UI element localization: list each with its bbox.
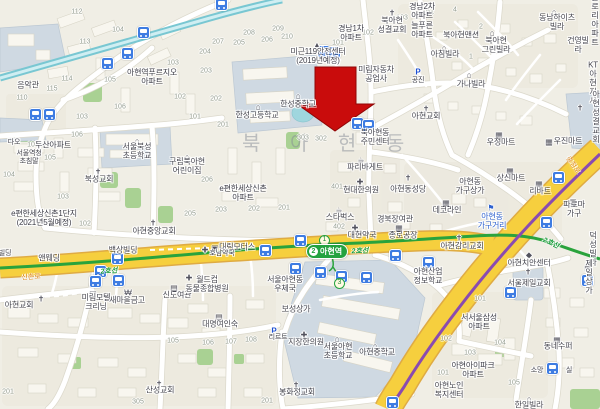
bus-stop-icon[interactable] bbox=[294, 234, 307, 247]
map-label: 한일빌라 bbox=[515, 402, 544, 409]
map-label: 백상빌딩 bbox=[109, 247, 138, 256]
map-label: 서울북성 초등학교 bbox=[123, 143, 152, 161]
map-label: 실 bbox=[566, 367, 572, 375]
subway-station-ahyeon[interactable]: 2 아현역 bbox=[306, 244, 348, 259]
map-label: 미림모텔 크리닝 bbox=[82, 294, 111, 312]
map-label: 봉화정교회 bbox=[279, 389, 315, 398]
bus-stop-icon[interactable] bbox=[43, 108, 56, 121]
map-label: 앤웨딩 bbox=[38, 255, 59, 264]
parking-icon[interactable]: P bbox=[415, 68, 420, 77]
station-exit-3[interactable]: 3 bbox=[334, 278, 345, 289]
building-number: 104 bbox=[494, 340, 506, 347]
map-label: 미림자동차 공업사 bbox=[358, 66, 394, 84]
building-number: 101 bbox=[474, 296, 486, 303]
map-label: 지장한의원 bbox=[288, 339, 324, 348]
map-label: 아현치안센터 bbox=[508, 260, 551, 269]
bus-stop-icon[interactable] bbox=[546, 362, 559, 375]
building-number: 102 bbox=[440, 336, 452, 343]
bus-stop-icon[interactable] bbox=[137, 26, 150, 39]
building-number: 105 bbox=[44, 155, 56, 162]
map-label: 두산아파트 bbox=[35, 142, 71, 151]
map-label: 아현아이파크 아파트 bbox=[452, 362, 495, 380]
building-number: 105 bbox=[167, 338, 179, 345]
map-label: 아현중학교 bbox=[359, 349, 395, 358]
building-number: 105 bbox=[508, 380, 520, 387]
building-number: 201 bbox=[261, 398, 273, 405]
bus-stop-icon[interactable] bbox=[112, 274, 125, 287]
bus-stop-icon[interactable] bbox=[389, 249, 402, 262]
building-number: 302 bbox=[315, 136, 327, 143]
map-label: 글로리 아파트 bbox=[591, 0, 598, 48]
map-label: 아현중앙교회 bbox=[133, 228, 176, 237]
map-label: 동네수퍼 bbox=[544, 343, 573, 352]
building-number: 106 bbox=[202, 340, 214, 347]
map-label: 소망 bbox=[531, 367, 543, 375]
map-label: 음악관 bbox=[17, 82, 38, 91]
building-number: 205 bbox=[233, 40, 245, 47]
map-label: 북성교회 bbox=[85, 176, 114, 185]
map-label: 새마을금고 bbox=[109, 297, 145, 306]
building-number: 203 bbox=[200, 68, 212, 75]
bus-stop-icon[interactable] bbox=[89, 275, 102, 288]
building-number: 207 bbox=[212, 39, 224, 46]
map-label: 산성교회 bbox=[146, 387, 175, 396]
building-number: 101 bbox=[189, 114, 201, 121]
map-label: 아현역푸르지오 아파트 bbox=[127, 69, 177, 87]
building-number: 205 bbox=[184, 211, 196, 218]
map-label: 한성중학교 bbox=[280, 101, 316, 110]
map-label: 월드컵 동물종합병원 bbox=[186, 276, 229, 294]
building-number: 115 bbox=[46, 86, 57, 93]
building-number: 401 bbox=[331, 184, 343, 191]
building-number: 112 bbox=[71, 9, 82, 16]
map-label: 우정마트 bbox=[487, 139, 516, 148]
line2-badge: 2 bbox=[309, 247, 318, 256]
building-number: 103 bbox=[57, 194, 69, 201]
map-label: e편한세상신촌 아파트 bbox=[219, 185, 266, 203]
building-number: 210 bbox=[281, 34, 293, 41]
map-label: 가나빌라 bbox=[457, 81, 486, 90]
map-label: 아현동 가구거리 bbox=[478, 213, 507, 231]
map-view[interactable]: 북 아 현 동 음악관아현역푸르지오 아파트다오서울역청 초침말두산아파트서울북… bbox=[0, 0, 600, 409]
building-number: 209 bbox=[272, 26, 284, 33]
map-label: 아현산업 정보학교 bbox=[414, 268, 443, 286]
map-label: 늘푸른 아파트 bbox=[411, 22, 432, 40]
hospital-icon[interactable]: ✚ bbox=[202, 246, 209, 255]
map-label: 경남1차 아파트 bbox=[338, 25, 364, 43]
map-label: 건영빌라 bbox=[567, 37, 589, 55]
building-number: 102 bbox=[79, 221, 91, 228]
building-number: 108 bbox=[245, 337, 257, 344]
church-icon[interactable]: ✝ bbox=[38, 295, 45, 304]
building-number: 206 bbox=[201, 177, 213, 184]
building-number: 113 bbox=[79, 39, 90, 46]
building-number: 104 bbox=[112, 27, 124, 34]
map-label: 서울제일교회 bbox=[508, 280, 551, 289]
map-label: 서울아현 초등학교 bbox=[324, 343, 353, 361]
bus-stop-icon[interactable] bbox=[540, 216, 553, 229]
building-number: 204 bbox=[199, 49, 211, 56]
bus-stop-icon[interactable] bbox=[101, 57, 114, 70]
building-number: 303 bbox=[297, 135, 309, 142]
building-number: 103 bbox=[76, 114, 88, 121]
map-label: 구립북아현 어린이집 bbox=[169, 158, 205, 176]
bus-stop-icon[interactable] bbox=[29, 108, 42, 121]
map-label: 다오 bbox=[8, 139, 20, 147]
building-number: 103 bbox=[167, 60, 179, 67]
villa-icon[interactable]: ⌂ bbox=[467, 71, 472, 80]
building-number: 201 bbox=[217, 122, 229, 129]
map-label: 우진마트 bbox=[554, 138, 583, 147]
map-label: 스타벅스 bbox=[326, 214, 355, 223]
map-label: 서서울삼성 아파트 bbox=[461, 314, 497, 332]
bus-stop-icon[interactable] bbox=[360, 271, 373, 284]
map-label: 제일상가 bbox=[584, 260, 595, 296]
map-label: 리르트 bbox=[269, 334, 288, 342]
map-label: 아침빌라 bbox=[431, 51, 460, 60]
road-name-label: 신촌로 bbox=[21, 271, 41, 282]
map-label: 아현노인 복지센터 bbox=[435, 382, 464, 400]
map-label: 아현교회 bbox=[5, 302, 34, 311]
building-number: 305 bbox=[132, 399, 144, 406]
map-label: 북아현 성결교회 bbox=[378, 17, 407, 35]
building-number: 105 bbox=[104, 77, 116, 84]
map-label: 아현성결교회 bbox=[592, 91, 599, 145]
map-label: 호남약국 bbox=[210, 250, 235, 258]
church-icon[interactable]: ✝ bbox=[577, 104, 584, 113]
building-number: 2 bbox=[479, 24, 483, 31]
map-label: 아현동성당 bbox=[390, 186, 426, 195]
building-number: 103 bbox=[464, 350, 476, 357]
church-icon[interactable]: ✝ bbox=[525, 268, 532, 277]
map-label: 아현교회 bbox=[412, 113, 441, 122]
map-label: 공진 bbox=[412, 77, 424, 85]
map-label: 상신마트 bbox=[497, 175, 526, 184]
building-number: 203 bbox=[215, 207, 227, 214]
map-label: 파로마가구 bbox=[561, 201, 587, 219]
bus-stop-icon[interactable] bbox=[552, 171, 565, 184]
station-name: 아현역 bbox=[320, 246, 342, 257]
map-label: 서울아현동 우체국 bbox=[267, 276, 303, 294]
building-number: 106 bbox=[71, 132, 83, 139]
building-number: 106 bbox=[114, 104, 126, 111]
district-watermark: 북 아 현 동 bbox=[242, 132, 416, 155]
subway-line-label: 2호선 bbox=[351, 246, 368, 257]
church-icon[interactable]: ✝ bbox=[405, 174, 412, 183]
map-label: 북아현맨션 bbox=[443, 32, 479, 41]
bus-stop-icon[interactable] bbox=[215, 0, 228, 11]
map-label: 데코라인 bbox=[433, 207, 462, 216]
map-label: 서울역청 초침말 bbox=[17, 150, 42, 166]
map-label: 현대한의원 bbox=[343, 187, 379, 196]
bus-stop-icon[interactable] bbox=[121, 47, 134, 60]
building-number: 104 bbox=[3, 172, 15, 179]
map-label: 미근119안전센터 (2019년예정) bbox=[290, 48, 345, 66]
map-label: 경북장여관 bbox=[377, 216, 413, 225]
building-number: 202 bbox=[248, 206, 260, 213]
building-number: 102 bbox=[174, 94, 186, 101]
map-label: 아현감리교회 bbox=[441, 243, 484, 252]
building-number: 110 bbox=[16, 95, 27, 102]
bus-stop-icon[interactable] bbox=[386, 396, 399, 409]
building-number: 101 bbox=[437, 370, 449, 377]
map-label: 파리바게트 bbox=[347, 164, 383, 173]
subway-line-label: 2호선 bbox=[100, 265, 117, 276]
bus-stop-icon[interactable] bbox=[314, 266, 327, 279]
map-label: 빌딩 bbox=[0, 250, 11, 258]
building-number: 107 bbox=[225, 339, 237, 346]
bus-stop-icon[interactable] bbox=[259, 244, 272, 257]
mart-icon[interactable]: ▦ bbox=[545, 138, 553, 147]
map-label: 경남2차 아파트 bbox=[409, 3, 435, 21]
map-label: e편한세상신촌1단지 (2021년5월예정) bbox=[11, 210, 77, 228]
building-number: 114 bbox=[61, 76, 72, 83]
map-label: 대명여인숙 bbox=[202, 321, 238, 330]
map-label: 아현동 가구상가 bbox=[456, 178, 485, 196]
map-label: 대현약국 bbox=[348, 232, 377, 241]
map-label: 보성상가 bbox=[282, 306, 311, 315]
building-number: 201 bbox=[2, 389, 14, 396]
bus-stop-icon[interactable] bbox=[289, 262, 302, 275]
map-label: 리바트 bbox=[529, 188, 550, 197]
map-label: 종로공장 bbox=[389, 232, 418, 241]
map-label: 북아현동 주민센터 bbox=[361, 129, 390, 147]
building-number: 4 bbox=[453, 7, 457, 14]
map-label: 동남하이츠 빌라 bbox=[539, 14, 575, 32]
building-number: 206 bbox=[261, 37, 273, 44]
map-label: 북아현 그린빌라 bbox=[482, 37, 511, 55]
building-number: 402 bbox=[333, 224, 345, 231]
building-number: 201 bbox=[278, 205, 290, 212]
building-number: 1 bbox=[469, 54, 473, 61]
building-number: 202 bbox=[210, 96, 222, 103]
building-number: 208 bbox=[243, 30, 255, 37]
map-label: 한성고등학교 bbox=[236, 112, 279, 121]
